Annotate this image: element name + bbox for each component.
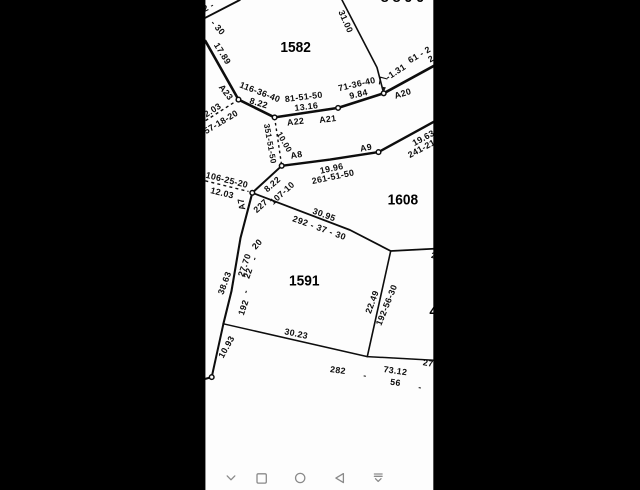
svg-text:A8: A8 xyxy=(290,149,304,161)
svg-text:A22: A22 xyxy=(286,116,304,128)
svg-text:27: 27 xyxy=(422,357,434,369)
svg-text:56: 56 xyxy=(390,377,402,388)
svg-text:8800: 8800 xyxy=(381,0,428,6)
svg-text:1591: 1591 xyxy=(289,272,320,289)
svg-text:A9: A9 xyxy=(359,142,373,154)
svg-text:A7: A7 xyxy=(235,197,247,211)
svg-text:A21: A21 xyxy=(319,113,337,125)
svg-text:1608: 1608 xyxy=(388,192,419,209)
svg-text:1582: 1582 xyxy=(280,39,311,56)
